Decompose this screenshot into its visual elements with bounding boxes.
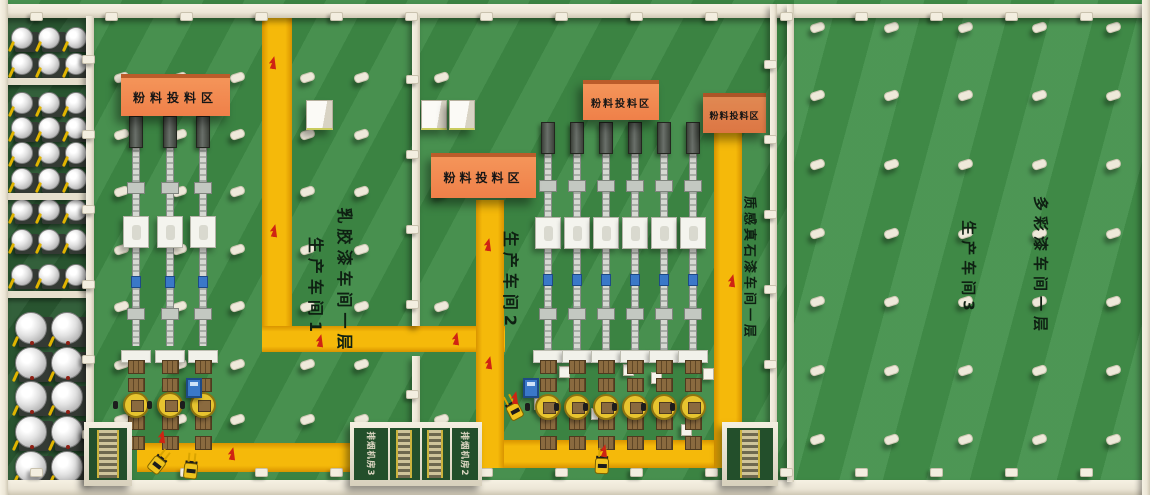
control-unit	[165, 276, 175, 288]
mixing-tank	[15, 416, 47, 448]
hopper-unit	[628, 122, 642, 154]
hopper-unit	[163, 116, 177, 148]
sign-text: 粉料投料区	[133, 89, 218, 106]
filling-machine	[651, 217, 677, 249]
control-unit	[630, 274, 640, 286]
mixing-tank	[11, 229, 33, 251]
tank-valve	[30, 376, 34, 380]
latex-paint-workshop-floor-label: 乳胶漆车间一层	[334, 207, 358, 354]
pallet-stack	[162, 416, 179, 430]
forklift	[595, 450, 610, 474]
mixing-tank	[38, 117, 60, 139]
wall-pillar-bump	[555, 12, 568, 21]
tank-valve	[66, 341, 70, 345]
pallet-stack	[162, 360, 179, 374]
wall-pillar-bump	[630, 468, 643, 477]
smoke-exhaust-room-block: 排烟机房3 排烟机房2	[350, 422, 482, 486]
staircase	[396, 430, 412, 478]
control-unit	[659, 274, 669, 286]
wall-pillar-bump	[255, 12, 268, 21]
line-station	[684, 308, 702, 320]
tank-valve	[30, 445, 34, 449]
worker-figure	[180, 401, 185, 409]
wall-pillar-bump	[105, 12, 118, 21]
pallet-stack	[128, 360, 145, 374]
wall-pillar-bump	[705, 468, 718, 477]
mixing-tank	[51, 381, 83, 413]
line-station	[568, 180, 586, 192]
pallet-stack	[540, 360, 557, 374]
paint-factory-floor-plan: 粉料投料区 粉料投料区 粉料投料区 粉料投料区 乳胶漆车间一层 生产车间1 生产…	[0, 0, 1150, 495]
smoke-exhaust-room-3: 排烟机房3	[354, 428, 388, 480]
pallet-turntable	[123, 392, 149, 418]
pallet-stack	[540, 436, 557, 450]
hopper-unit	[196, 116, 210, 148]
wall-pillar-bump	[255, 468, 268, 477]
line-station	[161, 308, 179, 320]
worker-figure	[554, 403, 559, 411]
control-unit	[601, 274, 611, 286]
production-workshop-2-floor-label: 生产车间2	[500, 231, 524, 331]
stairwell-room-left	[84, 422, 132, 486]
mixing-tank	[11, 264, 33, 286]
tank-valve	[30, 341, 34, 345]
worker-figure	[670, 403, 675, 411]
sign-text: 粉料投料区	[591, 95, 651, 110]
wall-pillar-bump	[1005, 468, 1018, 477]
mixing-tank	[51, 416, 83, 448]
mixing-tank	[51, 312, 83, 344]
wall-pillar-bump	[764, 285, 777, 294]
line-station	[626, 180, 644, 192]
stone-paint-workshop-floor-label: 质感真石漆车间一层	[742, 196, 761, 340]
control-unit	[198, 276, 208, 288]
pallet-turntable	[680, 394, 706, 420]
wall-pillar-bump	[330, 468, 343, 477]
wall-pillar-bump	[180, 12, 193, 21]
storage-cube	[421, 100, 447, 130]
pallet-stack	[656, 436, 673, 450]
pallet-stack	[195, 416, 212, 430]
wall-pillar-bump	[330, 12, 343, 21]
pallet-stack	[195, 360, 212, 374]
line-station	[655, 308, 673, 320]
wall-pillar-bump	[705, 12, 718, 21]
stairwell-interior	[89, 428, 127, 480]
line-station	[161, 182, 179, 194]
pallet-stack	[598, 436, 615, 450]
wall-pillar-bump	[406, 300, 419, 309]
pallet-stack	[656, 378, 673, 392]
tank-area-walkway	[6, 78, 90, 85]
forklift-body	[183, 462, 199, 479]
production-line	[591, 122, 621, 446]
forklift-tines	[598, 448, 600, 457]
wall-pillar-bump	[480, 12, 493, 21]
hopper-unit	[541, 122, 555, 154]
pallet-stack	[598, 378, 615, 392]
tank-valve	[66, 376, 70, 380]
line-station	[127, 182, 145, 194]
wall-pillar-bump	[1080, 12, 1093, 21]
line-station	[597, 308, 615, 320]
line-station	[655, 180, 673, 192]
storage-cube	[306, 100, 333, 130]
mixing-tank	[51, 347, 83, 379]
powder-feeding-area-sign-1: 粉料投料区	[121, 74, 230, 116]
production-line	[620, 122, 650, 446]
mixing-tank	[65, 27, 87, 49]
mixing-tank	[51, 451, 83, 483]
multicolor-paint-workshop-floor-label: 多彩漆车间一层	[1031, 196, 1052, 336]
wall-pillar-bump	[30, 468, 43, 477]
pallet-stack	[627, 378, 644, 392]
pallet-stack	[569, 360, 586, 374]
filling-machine	[157, 216, 183, 248]
staircase	[427, 430, 443, 478]
bottom-wall	[0, 480, 1150, 495]
mixing-tank	[11, 53, 33, 75]
worker-figure	[583, 403, 588, 411]
ws2-ws3-wall-left	[770, 4, 777, 482]
sign-text: 粉料投料区	[709, 109, 759, 122]
mixing-tank	[38, 27, 60, 49]
production-line	[155, 116, 185, 446]
blue-machine	[186, 378, 202, 398]
mixing-tank	[11, 142, 33, 164]
filling-machine	[190, 216, 216, 248]
wall-pillar-bump	[406, 75, 419, 84]
wall-pillar-bump	[555, 468, 568, 477]
wall-pillar-bump	[82, 130, 95, 139]
control-unit	[688, 274, 698, 286]
wall-pillar-bump	[930, 468, 943, 477]
smoke-exhaust-room-3-label: 排烟机房3	[365, 432, 377, 477]
pallet-stack	[540, 378, 557, 392]
sign-text: 粉料投料区	[443, 169, 523, 186]
wall-pillar-bump	[855, 468, 868, 477]
pallet-stack	[569, 436, 586, 450]
mixing-tank	[65, 229, 87, 251]
production-line	[121, 116, 151, 446]
mixing-tank	[15, 381, 47, 413]
top-wall	[0, 4, 1150, 18]
path-ws2-right-vertical	[714, 133, 742, 468]
left-wall	[0, 0, 8, 495]
pallet-stack	[195, 436, 212, 450]
mixing-tank	[15, 312, 47, 344]
path-ws1-ws2-connector	[262, 326, 505, 352]
ws1-ws2-wall-upper	[412, 16, 420, 326]
powder-feeding-area-sign-2: 粉料投料区	[431, 153, 536, 198]
forklift-tines	[503, 397, 509, 406]
forklift-body	[595, 458, 610, 474]
mixing-tank	[65, 142, 87, 164]
mixing-tank	[38, 168, 60, 190]
tank-area-wall	[86, 16, 94, 482]
powder-feeding-area-sign-3: 粉料投料区	[583, 80, 659, 120]
staircase	[97, 430, 119, 478]
pallet-stack	[685, 378, 702, 392]
production-workshop-1-floor-label: 生产车间1	[305, 237, 329, 337]
pallet-stack	[128, 378, 145, 392]
wall-pillar-bump	[82, 55, 95, 64]
stairwell-interior	[727, 428, 773, 480]
filling-machine	[123, 216, 149, 248]
filling-machine	[564, 217, 590, 249]
tank-valve	[30, 410, 34, 414]
blue-machine	[523, 378, 539, 398]
wall-pillar-bump	[764, 135, 777, 144]
hopper-unit	[657, 122, 671, 154]
smoke-exhaust-room-2-label: 排烟机房2	[459, 432, 471, 477]
worker-figure	[612, 403, 617, 411]
wall-pillar-bump	[406, 390, 419, 399]
mixing-tank	[11, 199, 33, 221]
control-unit	[131, 276, 141, 288]
control-unit	[572, 274, 582, 286]
wall-pillar-bump	[82, 355, 95, 364]
line-station	[539, 308, 557, 320]
line-station	[194, 182, 212, 194]
filling-machine	[622, 217, 648, 249]
pallet-stack	[685, 360, 702, 374]
line-station	[626, 308, 644, 320]
tank-area-walkway	[6, 291, 90, 298]
wall-pillar-bump	[82, 280, 95, 289]
wall-pillar-bump	[406, 225, 419, 234]
filling-machine	[680, 217, 706, 249]
wall-pillar-bump	[30, 12, 43, 21]
line-station	[539, 180, 557, 192]
worker-figure	[113, 401, 118, 409]
hopper-unit	[686, 122, 700, 154]
mixing-tank	[11, 168, 33, 190]
tank-valve	[66, 410, 70, 414]
right-wall	[1142, 0, 1150, 495]
tank-valve	[66, 445, 70, 449]
mixing-tank	[15, 451, 47, 483]
ws2-ws3-wall-right	[787, 4, 794, 482]
pallet-stack	[627, 436, 644, 450]
wall-pillar-bump	[764, 60, 777, 69]
production-line	[562, 122, 592, 446]
mixing-tank	[11, 92, 33, 114]
staircase	[740, 430, 760, 478]
worker-figure	[641, 403, 646, 411]
wall-pillar-bump	[630, 12, 643, 21]
wall-pillar-bump	[930, 12, 943, 21]
smoke-exhaust-room-2: 排烟机房2	[452, 428, 478, 480]
worker-figure	[525, 403, 530, 411]
line-station	[597, 180, 615, 192]
forklift-tines	[159, 449, 166, 457]
mixing-tank	[38, 53, 60, 75]
wall-pillar-bump	[780, 12, 793, 21]
worker-figure	[147, 401, 152, 409]
wall-pillar-bump	[405, 12, 418, 21]
stairwell-mid-1	[390, 428, 420, 480]
tank-area-walkway	[6, 193, 90, 200]
forklift	[183, 454, 199, 479]
wall-pillar-bump	[764, 210, 777, 219]
mixing-tank	[38, 199, 60, 221]
pallet-stack	[685, 436, 702, 450]
pallet-stack	[598, 360, 615, 374]
pallet-stack	[627, 360, 644, 374]
line-station	[127, 308, 145, 320]
production-line	[649, 122, 679, 446]
mixing-tank	[65, 168, 87, 190]
production-workshop-3-floor-label: 生产车间3	[959, 220, 980, 315]
production-line	[678, 122, 708, 446]
mixing-tank	[38, 264, 60, 286]
line-station	[194, 308, 212, 320]
line-station	[568, 308, 586, 320]
storage-cube	[449, 100, 475, 130]
wall-pillar-bump	[82, 205, 95, 214]
mixing-tank	[11, 27, 33, 49]
mixing-tank	[15, 347, 47, 379]
pallet-stack	[656, 360, 673, 374]
powder-feeding-area-sign-4: 粉料投料区	[703, 93, 766, 133]
pallet-stack	[569, 378, 586, 392]
stairwell-room-right	[722, 422, 778, 486]
hopper-unit	[599, 122, 613, 154]
mixing-tank	[38, 142, 60, 164]
filling-machine	[535, 217, 561, 249]
wall-pillar-bump	[855, 12, 868, 21]
mixing-tank	[65, 92, 87, 114]
mixing-tank	[38, 229, 60, 251]
mixing-tank	[38, 92, 60, 114]
path-ws1-vertical	[262, 17, 292, 352]
wall-pillar-bump	[1080, 468, 1093, 477]
control-unit	[543, 274, 553, 286]
stairwell-mid-2	[422, 428, 450, 480]
wall-pillar-bump	[406, 150, 419, 159]
wall-pillar-bump	[764, 360, 777, 369]
hopper-unit	[129, 116, 143, 148]
mixing-tank	[11, 117, 33, 139]
wall-pillar-bump	[780, 468, 793, 477]
line-station	[684, 180, 702, 192]
filling-machine	[593, 217, 619, 249]
wall-pillar-bump	[1005, 12, 1018, 21]
hopper-unit	[570, 122, 584, 154]
pallet-stack	[162, 378, 179, 392]
